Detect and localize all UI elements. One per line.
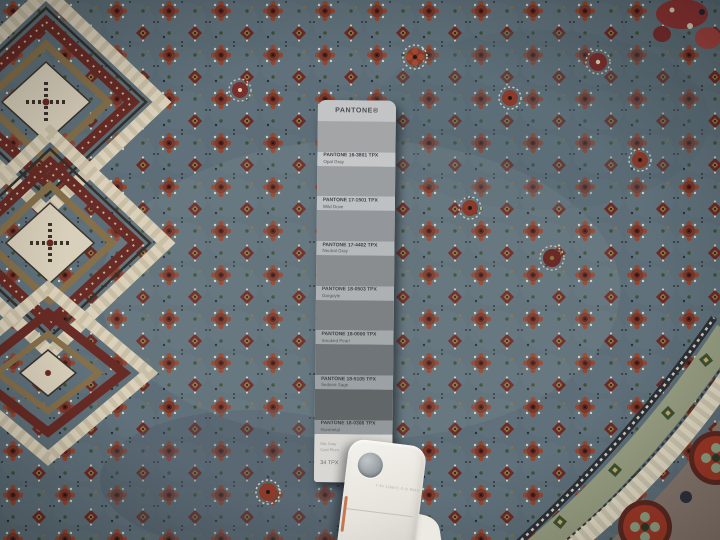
pantone-swatch: PANTONE 18-5105 TPX Sedona Sage bbox=[315, 344, 393, 390]
pantone-swatch-list: PANTONE 16-3801 TPX Opal Gray PANTONE 17… bbox=[315, 121, 396, 435]
device-orange-stripe bbox=[341, 496, 348, 532]
swatch-color-block bbox=[315, 344, 393, 376]
device-label-text: T-30 126801 G-D R910 bbox=[375, 483, 420, 492]
swatch-color-block bbox=[315, 389, 393, 421]
device-seam-line bbox=[345, 508, 413, 517]
swatch-color-block bbox=[317, 121, 395, 153]
swatch-name: Gargoyle bbox=[322, 293, 394, 299]
swatch-label: PANTONE 17-1501 TPX Wild Dove bbox=[317, 196, 395, 211]
swatch-label: PANTONE 17-4402 TPX Neutral Gray bbox=[316, 241, 394, 256]
pantone-swatch: PANTONE 17-4402 TPX Neutral Gray bbox=[316, 210, 394, 256]
swatch-name: Gunmetal bbox=[321, 427, 393, 433]
swatch-color-block bbox=[317, 210, 395, 242]
swatch-name: Smoked Pearl bbox=[321, 338, 393, 344]
pantone-swatch: PANTONE 17-1501 TPX Wild Dove bbox=[317, 166, 395, 212]
measuring-device: T-30 126801 G-D R910 bbox=[335, 438, 428, 540]
swatch-name: Wild Dove bbox=[323, 204, 395, 210]
device-button-circle bbox=[356, 451, 384, 479]
swatch-color-block bbox=[317, 166, 395, 198]
pantone-brand-text: PANTONE® bbox=[335, 107, 379, 114]
swatch-label: PANTONE 18-5105 TPX Sedona Sage bbox=[315, 375, 393, 390]
swatch-name: Opal Gray bbox=[323, 159, 395, 165]
swatch-name: Neutral Gray bbox=[322, 248, 394, 254]
swatch-color-block bbox=[316, 255, 394, 287]
swatch-label: PANTONE 18-0000 TPX Smoked Pearl bbox=[315, 330, 393, 345]
swatch-label: PANTONE 16-3801 TPX Opal Gray bbox=[317, 152, 395, 167]
pantone-card: PANTONE® PANTONE 16-3801 TPX Opal Gray P… bbox=[314, 100, 396, 483]
rug-photo-scene: PANTONE® PANTONE 16-3801 TPX Opal Gray P… bbox=[0, 0, 720, 540]
pantone-swatch: PANTONE 18-0000 TPX Smoked Pearl bbox=[315, 300, 393, 346]
swatch-label: PANTONE 18-0503 TPX Gargoyle bbox=[316, 286, 394, 301]
swatch-label: PANTONE 18-0306 TPX Gunmetal bbox=[315, 420, 393, 435]
pantone-swatch: PANTONE 18-0503 TPX Gargoyle bbox=[316, 255, 394, 301]
pantone-swatch: PANTONE 16-3801 TPX Opal Gray bbox=[317, 121, 395, 167]
pantone-swatch: PANTONE 18-0306 TPX Gunmetal bbox=[315, 389, 393, 435]
swatch-name: Sedona Sage bbox=[321, 382, 393, 388]
swatch-color-block bbox=[316, 300, 394, 332]
pantone-card-header: PANTONE® bbox=[318, 100, 396, 122]
